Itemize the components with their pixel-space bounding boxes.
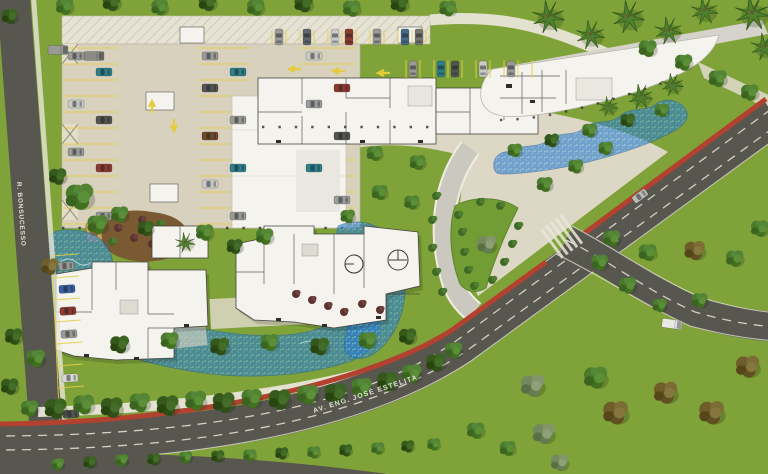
tree bbox=[88, 215, 110, 235]
tree bbox=[115, 454, 129, 467]
tree bbox=[533, 423, 556, 444]
tree bbox=[741, 84, 760, 101]
tree bbox=[500, 441, 517, 456]
tree bbox=[45, 398, 68, 419]
tree bbox=[21, 400, 40, 417]
truck bbox=[48, 46, 68, 55]
stair-core bbox=[150, 184, 178, 202]
tree bbox=[256, 228, 275, 245]
parked-car bbox=[62, 373, 79, 382]
tree bbox=[210, 338, 230, 356]
tree bbox=[213, 392, 236, 413]
parked-car bbox=[202, 52, 218, 60]
tree bbox=[591, 254, 609, 270]
tree bbox=[111, 206, 130, 223]
tree bbox=[343, 0, 362, 17]
parked-car bbox=[68, 100, 84, 108]
parked-car bbox=[61, 329, 78, 338]
tree bbox=[445, 342, 464, 359]
tree bbox=[161, 332, 180, 349]
tree bbox=[310, 338, 330, 356]
entry-kiosk bbox=[180, 27, 204, 43]
site-plan-image: R. BONSUCESSO AV. ENG. JOSÉ ESTELITA bbox=[0, 0, 768, 474]
tree bbox=[736, 356, 761, 378]
parked-car bbox=[334, 132, 350, 140]
tree bbox=[401, 440, 415, 453]
tree bbox=[179, 451, 193, 464]
tree bbox=[73, 395, 95, 415]
tree bbox=[307, 446, 321, 459]
tree bbox=[157, 395, 180, 416]
parked-car bbox=[373, 29, 381, 45]
tree bbox=[49, 168, 68, 185]
parked-car bbox=[306, 164, 322, 172]
parked-car bbox=[68, 52, 84, 60]
tree bbox=[341, 210, 357, 224]
tree bbox=[551, 454, 570, 471]
tree bbox=[339, 444, 353, 457]
tree bbox=[537, 177, 554, 192]
parked-car bbox=[334, 84, 350, 92]
tree bbox=[41, 258, 60, 275]
tree bbox=[654, 382, 679, 404]
parked-car bbox=[334, 196, 350, 204]
parked-car bbox=[230, 116, 246, 124]
tree bbox=[653, 299, 669, 313]
tree bbox=[196, 224, 215, 241]
tree bbox=[297, 385, 319, 405]
parked-car bbox=[345, 29, 353, 45]
parked-car bbox=[202, 132, 218, 140]
tree bbox=[584, 367, 609, 389]
tree bbox=[261, 334, 280, 351]
tree bbox=[26, 350, 46, 368]
tree bbox=[439, 0, 457, 16]
parked-car bbox=[479, 61, 487, 77]
tree bbox=[427, 438, 441, 451]
tree bbox=[639, 244, 658, 261]
parked-car bbox=[306, 100, 322, 108]
parked-car bbox=[230, 212, 246, 220]
tree bbox=[83, 456, 97, 469]
tree bbox=[399, 328, 418, 345]
tree bbox=[599, 142, 615, 156]
parked-car bbox=[275, 29, 283, 45]
tree bbox=[227, 239, 244, 254]
site-plan-canvas: R. BONSUCESSO AV. ENG. JOSÉ ESTELITA bbox=[0, 0, 768, 474]
tree bbox=[426, 353, 446, 371]
tree bbox=[619, 277, 638, 294]
parked-car bbox=[96, 68, 112, 76]
parked-car bbox=[202, 180, 218, 188]
parked-car bbox=[507, 61, 515, 77]
tree bbox=[51, 458, 65, 471]
tree bbox=[521, 375, 546, 397]
tree bbox=[185, 391, 207, 411]
tree bbox=[275, 447, 289, 460]
tree bbox=[675, 54, 694, 71]
tree bbox=[603, 401, 629, 425]
tree bbox=[404, 195, 420, 210]
tree bbox=[568, 159, 584, 174]
tree bbox=[726, 250, 745, 267]
parked-car bbox=[401, 29, 409, 45]
tree bbox=[410, 155, 427, 170]
tree bbox=[243, 449, 257, 462]
tree bbox=[621, 114, 637, 128]
tree bbox=[655, 104, 671, 118]
parked-car bbox=[230, 164, 246, 172]
parked-car bbox=[96, 116, 112, 124]
tree bbox=[639, 40, 658, 57]
parked-car bbox=[60, 306, 77, 315]
tree bbox=[467, 422, 486, 439]
parked-car bbox=[306, 52, 322, 60]
parked-car bbox=[58, 261, 75, 270]
tree bbox=[545, 134, 561, 148]
parked-car bbox=[331, 29, 339, 45]
parked-car bbox=[409, 61, 417, 77]
tree bbox=[2, 9, 19, 24]
stair-core bbox=[146, 92, 174, 110]
tree bbox=[692, 293, 709, 308]
tree bbox=[367, 146, 384, 161]
tree bbox=[699, 401, 725, 425]
tree bbox=[211, 450, 225, 463]
tree bbox=[371, 442, 385, 455]
tree bbox=[138, 221, 155, 236]
parked-car bbox=[96, 164, 112, 172]
tree bbox=[372, 185, 389, 200]
parked-car bbox=[68, 148, 84, 156]
tree bbox=[66, 184, 95, 211]
tree bbox=[582, 123, 598, 138]
parked-car bbox=[415, 29, 423, 45]
tree bbox=[242, 389, 264, 409]
parked-car bbox=[437, 61, 445, 77]
parked-car bbox=[230, 68, 246, 76]
tree bbox=[147, 453, 161, 466]
tree bbox=[359, 332, 378, 349]
tree bbox=[709, 70, 728, 87]
tree bbox=[101, 397, 124, 418]
tree bbox=[269, 389, 292, 410]
parked-car bbox=[59, 284, 76, 293]
tree bbox=[508, 144, 524, 158]
tree bbox=[1, 378, 20, 395]
parked-car bbox=[303, 29, 311, 45]
tree bbox=[130, 393, 152, 413]
parked-car bbox=[202, 84, 218, 92]
parked-car bbox=[451, 61, 459, 77]
tree bbox=[603, 230, 622, 247]
tree bbox=[685, 241, 707, 261]
tree bbox=[477, 236, 497, 254]
tree bbox=[110, 336, 130, 354]
truck bbox=[84, 52, 104, 61]
tree bbox=[5, 328, 24, 345]
